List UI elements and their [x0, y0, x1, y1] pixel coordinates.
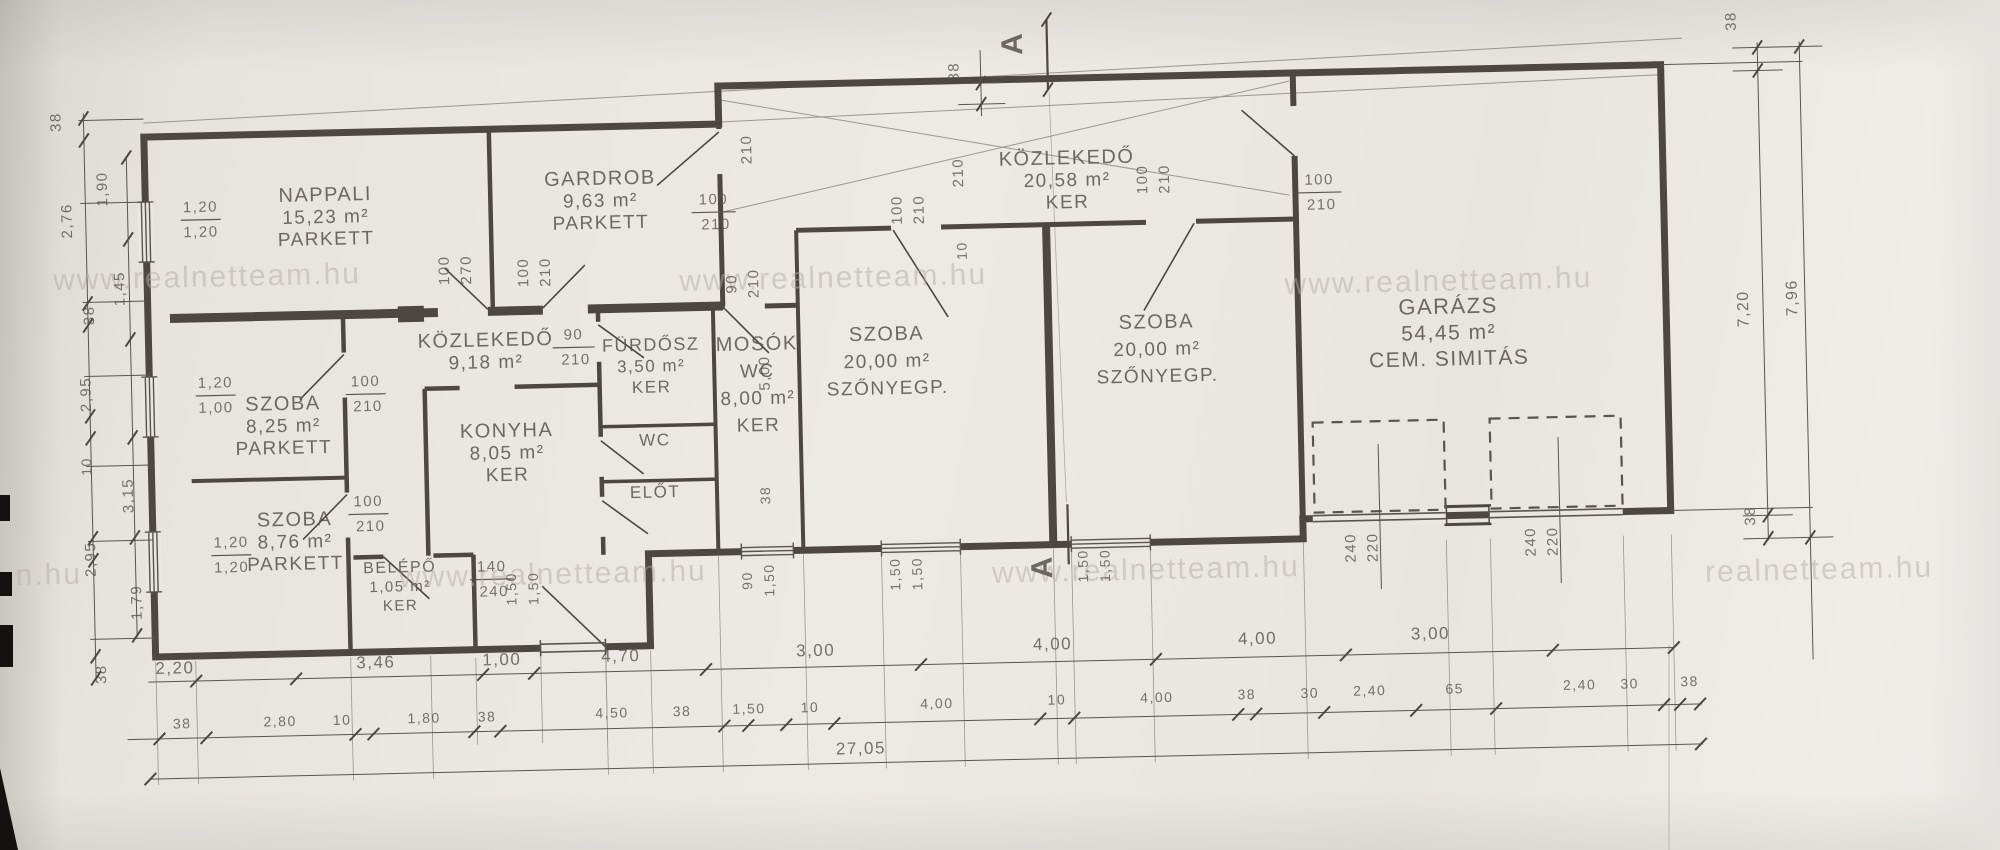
dim-label: 4,00: [1140, 689, 1174, 706]
extension-line: [1623, 536, 1628, 752]
dim-label: 1,00: [482, 650, 522, 670]
room-label-szoba-876: 8,76 m²: [257, 531, 332, 554]
watermark-text: n.hu: [15, 558, 82, 592]
dim-label: 2,76: [58, 203, 76, 239]
dim-label: 90: [723, 274, 740, 294]
window-bottom-szoba-20-1: [881, 539, 960, 557]
extension-line: [156, 662, 159, 785]
dim-label: 90: [563, 326, 583, 343]
dim-label: 3,46: [356, 653, 396, 673]
extension-line: [960, 551, 965, 767]
room-label-szoba-20-2: SZOBA: [1118, 310, 1194, 334]
dim-label: 100: [698, 191, 728, 209]
room-label-nappali: 15,23 m²: [282, 206, 369, 229]
room-label-szoba-825: PARKETT: [235, 437, 332, 460]
dim-label: 38: [1742, 506, 1759, 526]
extension-line: [1446, 540, 1451, 756]
dim-label: 270: [458, 255, 476, 285]
dim-label: 1,20: [213, 534, 249, 552]
dim-label: 2,20: [155, 658, 195, 678]
dim-label: 10: [800, 699, 819, 715]
extension-line: [1490, 539, 1495, 755]
room-label-szoba-20-1: 20,00 m²: [843, 350, 930, 373]
room-label-szoba-20-2: 20,00 m²: [1113, 338, 1200, 361]
dim-label: 2,95: [77, 377, 95, 413]
window-left-szoba-876: [145, 532, 162, 592]
dim-label: 38: [478, 708, 497, 724]
dim-label: 100: [350, 373, 380, 391]
dim-label: 210: [950, 158, 968, 188]
garage-door-dashed: [1313, 416, 1623, 513]
dim-label: 100: [436, 255, 454, 285]
room-label-szoba-20-1: SZŐNYEGP.: [827, 376, 949, 401]
room-label-belepo: KER: [383, 597, 419, 615]
room-label-szoba-825: SZOBA: [245, 392, 321, 416]
dim-label: 210: [353, 398, 383, 416]
room-label-kozlekedo-2: KER: [1046, 192, 1090, 214]
room-label-furdosz: 3,50 m²: [617, 356, 686, 377]
room-label-konyha: KER: [486, 464, 530, 486]
dim-label: 30: [1300, 685, 1319, 701]
section-marker: A: [1026, 555, 1060, 579]
section-marker: A: [996, 31, 1030, 55]
labels-layer: www.realnetteam.huwww.realnetteam.huwww.…: [4, 7, 1937, 777]
dim-label: 1,79: [128, 585, 146, 621]
dim-label: 1,20: [214, 559, 250, 577]
dim-label: 4,70: [601, 646, 641, 666]
dim-label: 38: [1680, 673, 1699, 689]
room-label-szoba-20-2: SZŐNYEGP.: [1096, 364, 1218, 389]
floor-plan-drawing: www.realnetteam.huwww.realnetteam.huwww.…: [0, 0, 2000, 850]
dim-label: 5,00: [756, 355, 774, 391]
room-label-wc: WC: [639, 430, 671, 450]
room-label-szoba-876: PARKETT: [247, 553, 344, 576]
dim-label: 1,50: [761, 563, 778, 597]
dim-label: 1,80: [407, 710, 441, 727]
dim-label: 210: [701, 216, 731, 234]
room-label-belepo: 1,05 m²: [369, 578, 431, 596]
dim-label: 1,20: [183, 223, 219, 241]
extension-line: [881, 552, 886, 768]
room-label-gardrob: PARKETT: [552, 212, 649, 235]
dim-label: 4,50: [595, 704, 629, 721]
entry-door-opening: [540, 639, 605, 656]
dim-label: 38: [173, 715, 192, 731]
room-label-kozlekedo-1: KÖZLEKEDŐ: [417, 327, 553, 353]
room-label-garazs: CEM. SIMITÁS: [1369, 346, 1530, 373]
room-label-szoba-20-1: SZOBA: [849, 322, 925, 346]
dim-label: 10: [78, 457, 94, 476]
room-label-szoba-825: 8,25 m²: [246, 415, 321, 438]
room-label-nappali: NAPPALI: [278, 183, 372, 207]
dimension-lines: [77, 31, 1838, 780]
dim-label: 210: [356, 518, 386, 536]
dim-label: 2,80: [263, 713, 297, 730]
window-left-szoba-825: [141, 377, 158, 437]
dim-label: 38: [93, 664, 110, 684]
dim-label: 4,00: [1238, 629, 1278, 649]
room-label-konyha: 8,05 m²: [469, 442, 544, 465]
dim-label: 100: [353, 493, 383, 511]
dim-label: 27,05: [836, 738, 886, 758]
dim-label: 210: [561, 351, 591, 369]
dim-label: 1,00: [198, 399, 234, 417]
room-label-belepo: BELÉPŐ: [363, 557, 436, 578]
dim-label: 2,95: [82, 542, 100, 578]
room-label-mosok: MOSÓK: [715, 331, 797, 356]
dim-label: 210: [910, 195, 928, 225]
dim-label: 1,50: [732, 700, 766, 717]
dim-label: 210: [738, 134, 756, 164]
scanned-floor-plan-page: { "watermark": { "text": "www.realnettea…: [0, 0, 2000, 850]
room-label-kozlekedo-2: KÖZLEKEDŐ: [998, 145, 1134, 171]
extension-line: [1303, 543, 1308, 759]
extension-line: [651, 651, 654, 774]
room-label-gardrob: 9,63 m²: [563, 190, 638, 213]
dim-label: 220: [1544, 526, 1562, 556]
dim-label: 1,50: [909, 557, 926, 591]
dim-label: 38: [945, 62, 962, 82]
dim-label: 100: [888, 195, 906, 225]
watermark-text: www.realnetteam.hu: [398, 554, 707, 594]
room-label-furdosz: KER: [632, 377, 672, 397]
dim-label: 210: [745, 268, 763, 298]
watermark-text: realnetteam.hu: [1705, 551, 1934, 589]
room-label-mosok: KER: [737, 415, 781, 437]
dim-label: 2,40: [1563, 676, 1597, 693]
dim-label: 65: [1445, 680, 1464, 696]
dim-label: 100: [1304, 171, 1334, 189]
dim-label: 38: [673, 703, 692, 719]
room-label-kozlekedo-1: 9,18 m²: [448, 352, 523, 375]
room-label-szoba-876: SZOBA: [257, 508, 333, 532]
dim-label: 10: [333, 712, 352, 728]
dim-label: 1,20: [183, 198, 219, 216]
dim-label: 7,96: [1783, 279, 1801, 317]
dim-label: 240: [1342, 533, 1360, 563]
room-label-konyha: KONYHA: [460, 419, 554, 443]
watermark-text: www.realnetteam.hu: [52, 257, 361, 297]
room-label-furdosz: FÜRDŐSZ: [602, 333, 700, 356]
dim-label: 38: [1722, 11, 1739, 31]
dim-label: 1,50: [1096, 549, 1113, 583]
extension-line: [718, 556, 723, 772]
dim-label: 38: [81, 305, 98, 325]
dim-label: 7,20: [1735, 290, 1753, 328]
window-bottom-mosok: [741, 542, 793, 559]
dim-label: 3,15: [120, 478, 138, 514]
dim-label: 210: [1307, 196, 1337, 214]
dim-label: 38: [47, 112, 64, 132]
dim-label: 10: [1047, 691, 1066, 707]
dim-label: 10: [953, 241, 969, 260]
dim-label: 30: [1620, 675, 1639, 691]
dim-label: 2,40: [1353, 682, 1387, 699]
room-label-garazs: GARÁZS: [1398, 292, 1498, 319]
room-label-gardrob: GARDROB: [544, 166, 656, 191]
room-label-nappali: PARKETT: [278, 228, 375, 251]
dim-label: 210: [1156, 164, 1174, 194]
dim-label: 3,00: [1411, 624, 1451, 644]
dim-label: 1,45: [111, 271, 129, 307]
dim-label: 38: [757, 486, 773, 505]
dim-label: 100: [1134, 164, 1152, 194]
dim-label: 1,20: [198, 374, 234, 392]
window-left-nappali: [137, 202, 154, 262]
dim-label: 1,50: [525, 572, 542, 606]
dim-label: 4,00: [920, 695, 954, 712]
room-label-garazs: 54,45 m²: [1401, 320, 1496, 345]
dim-label: 1,50: [887, 557, 904, 591]
dim-label: 100: [515, 258, 533, 288]
room-label-elot: ELŐT: [630, 482, 681, 502]
dim-label: 90: [739, 571, 755, 590]
dim-label: 240: [1522, 527, 1540, 557]
dim-label: 1,90: [94, 171, 112, 207]
dim-label: 220: [1364, 532, 1382, 562]
extension-line: [1671, 535, 1676, 751]
dim-label: 210: [537, 257, 555, 287]
room-label-kozlekedo-2: 20,58 m²: [1023, 169, 1110, 192]
dim-label: 4,00: [1033, 634, 1073, 654]
dim-label: 38: [1237, 686, 1256, 702]
dim-label: 3,00: [796, 641, 836, 661]
dim-label: 1,50: [1074, 549, 1091, 583]
extension-line: [803, 554, 808, 770]
dim-label: 1,50: [503, 572, 520, 606]
